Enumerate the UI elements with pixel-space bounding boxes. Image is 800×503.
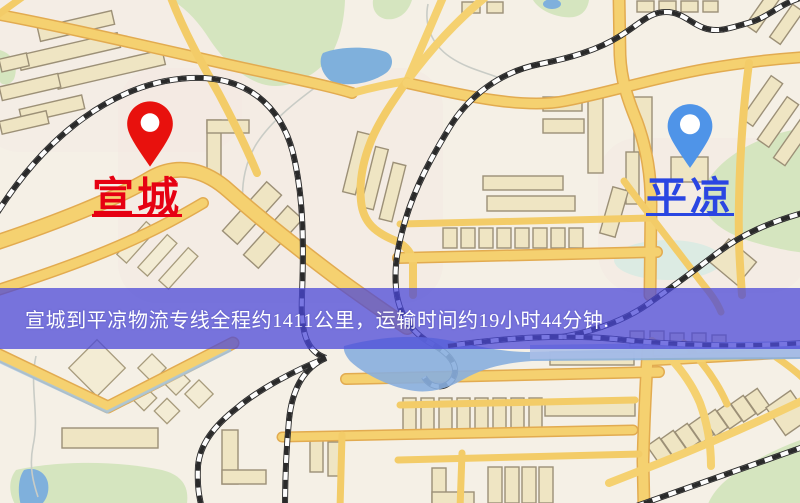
pin-hole [680, 114, 700, 134]
map-viewport[interactable]: 宣城到平凉物流专线全程约1411公里，运输时间约19小时44分钟. 宣城 平凉 [0, 0, 800, 503]
origin-label: 宣城 [92, 177, 182, 219]
pin-shape [127, 101, 173, 166]
destination-pin[interactable] [664, 103, 716, 174]
origin-pin-icon [125, 100, 175, 168]
route-info-banner: 宣城到平凉物流专线全程约1411公里，运输时间约19小时44分钟. [0, 288, 800, 349]
destination-label: 平凉 [646, 177, 734, 218]
origin-pin[interactable] [125, 100, 175, 173]
pin-hole [141, 113, 160, 132]
destination-pin-icon [664, 103, 716, 169]
route-info-text: 宣城到平凉物流专线全程约1411公里，运输时间约19小时44分钟. [25, 304, 609, 333]
pin-shape [668, 104, 713, 168]
map-canvas[interactable] [0, 0, 800, 503]
